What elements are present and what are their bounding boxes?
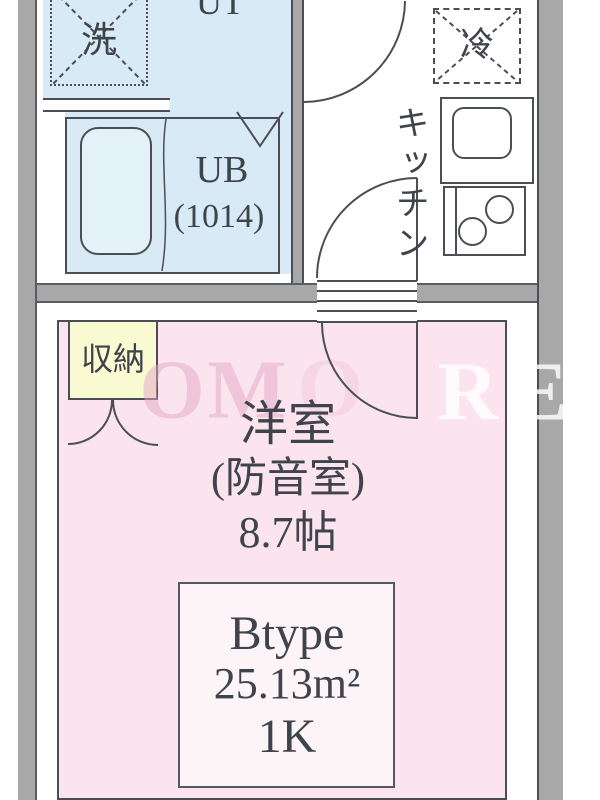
kitchen-sink xyxy=(452,107,512,159)
stove-burner-2 xyxy=(458,217,487,246)
wall-washroom-hall xyxy=(291,0,304,283)
bathtub xyxy=(80,127,152,255)
entrance-door-arc xyxy=(304,1,405,102)
threshold-line-2 xyxy=(317,300,417,302)
unit-layout-label: 1K xyxy=(258,713,317,761)
washer-label: 洗 xyxy=(81,22,117,58)
wall-stub-washroom xyxy=(43,98,170,112)
main-room-label-line1: 洋室 xyxy=(240,401,336,449)
watermark-letter: E xyxy=(512,344,568,441)
storage-label: 収納 xyxy=(81,343,145,375)
main-room-label-line2: (防音室) xyxy=(211,458,365,500)
stove-divider-line xyxy=(455,188,457,254)
stove-burner-1 xyxy=(485,195,514,224)
wall-middle-right xyxy=(417,283,537,303)
threshold-line-1 xyxy=(317,290,417,292)
kitchen-label: キッチン xyxy=(391,105,425,265)
margin-left-bath xyxy=(43,112,65,283)
wall-outer-left xyxy=(18,0,37,800)
margin-bottom-bath xyxy=(43,274,295,283)
unit-type-label: Btype xyxy=(230,610,345,658)
unit-area-label: 25.13m² xyxy=(214,662,360,706)
watermark-letter: R xyxy=(438,344,499,441)
floorplan-canvas: O M O R E UT 洗 UB (1014) 冷 キッチン 収納 洋室 (防… xyxy=(0,0,600,800)
utility-label-partial: UT xyxy=(196,0,244,20)
threshold-line-3 xyxy=(317,310,417,312)
unit-bath-label-line2: (1014) xyxy=(174,200,265,234)
wall-middle-left xyxy=(37,283,317,303)
main-room-label-line3: 8.7帖 xyxy=(239,511,338,555)
watermark-letter: O xyxy=(139,342,204,439)
unit-bath-label-line1: UB xyxy=(196,151,249,189)
fridge-label: 冷 xyxy=(460,29,494,63)
